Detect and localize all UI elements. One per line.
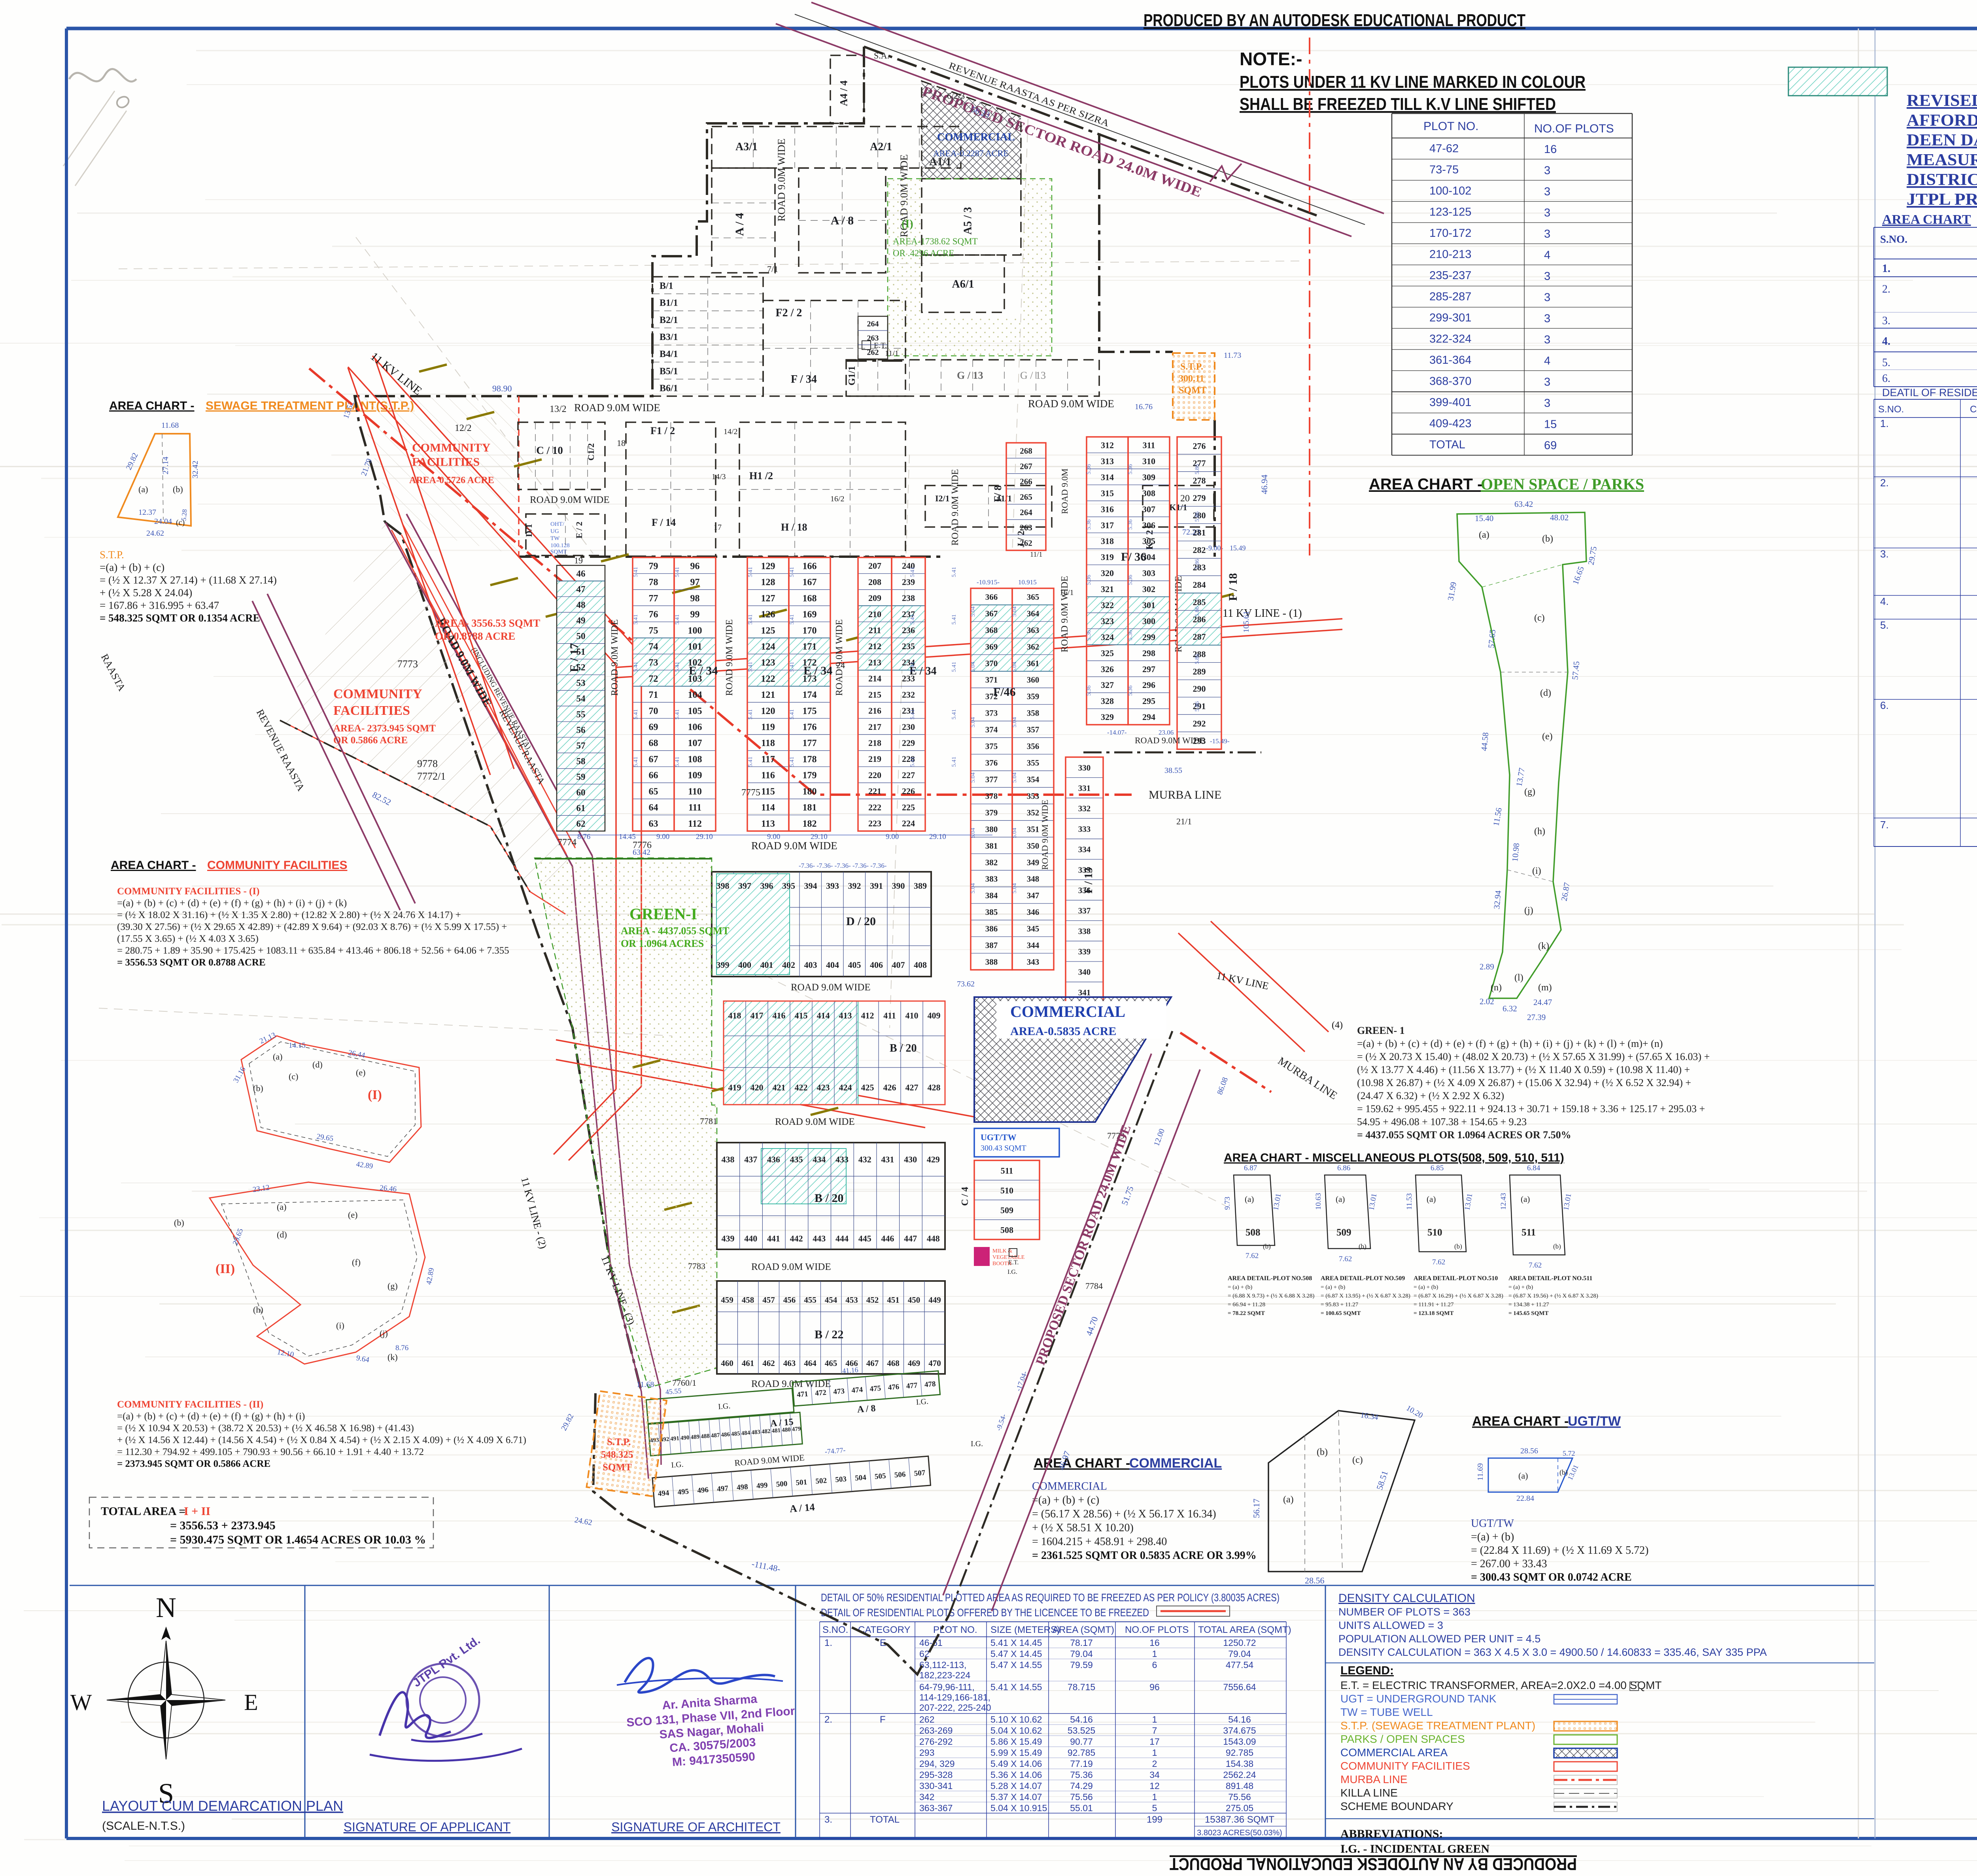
svg-text:63.42: 63.42 [633, 848, 650, 857]
svg-text:(n): (n) [1491, 982, 1502, 993]
svg-text:330-341: 330-341 [919, 1781, 953, 1791]
svg-text:443: 443 [813, 1234, 826, 1243]
svg-text:499: 499 [756, 1481, 768, 1490]
svg-text:7760/1: 7760/1 [672, 1378, 696, 1388]
svg-text:MURBA LINE: MURBA LINE [1340, 1773, 1408, 1785]
svg-text:62: 62 [919, 1649, 930, 1659]
svg-text:5.41: 5.41 [951, 662, 957, 672]
svg-text:(a): (a) [1521, 1194, 1530, 1204]
svg-text:5.: 5. [1880, 619, 1889, 631]
svg-text:5.47 X 14.45: 5.47 X 14.45 [990, 1649, 1042, 1659]
svg-text:W: W [70, 1689, 92, 1715]
svg-text:5.41: 5.41 [633, 614, 639, 625]
svg-text:ROAD 9.0M WIDE: ROAD 9.0M WIDE [530, 495, 610, 505]
svg-text:24: 24 [836, 660, 845, 670]
svg-text:265: 265 [1020, 492, 1032, 502]
svg-text:386: 386 [985, 924, 998, 933]
svg-text:9.00: 9.00 [656, 833, 669, 841]
svg-text:98.90: 98.90 [492, 384, 512, 393]
svg-text:= (6.88 X 9.73) + (½ X 6.88 X: = (6.88 X 9.73) + (½ X 6.88 X 3.28) [1228, 1293, 1314, 1299]
svg-text:20: 20 [1180, 493, 1190, 504]
svg-text:510: 510 [1000, 1185, 1013, 1195]
svg-text:180: 180 [803, 786, 817, 797]
svg-text:5.04: 5.04 [1011, 772, 1018, 783]
svg-text:AREA- 3556.53 SQMT: AREA- 3556.53 SQMT [435, 617, 540, 629]
svg-text:B / 20: B / 20 [890, 1042, 917, 1054]
svg-text:3.: 3. [824, 1814, 832, 1825]
svg-text:215: 215 [868, 690, 881, 699]
svg-text:UGT/TW: UGT/TW [1568, 1414, 1621, 1429]
svg-text:378: 378 [985, 791, 998, 801]
svg-text:AREA (SQMT): AREA (SQMT) [1053, 1625, 1114, 1635]
svg-text:308: 308 [1142, 488, 1155, 498]
svg-text:219: 219 [868, 754, 881, 764]
svg-text:7.: 7. [1880, 819, 1889, 831]
svg-text:214: 214 [868, 674, 881, 684]
svg-text:53: 53 [576, 678, 586, 688]
svg-text:5.04: 5.04 [970, 606, 976, 617]
svg-text:356: 356 [1027, 742, 1040, 751]
svg-text:(I): (I) [368, 1088, 382, 1102]
svg-text:182: 182 [803, 819, 817, 829]
svg-text:170: 170 [803, 625, 817, 636]
svg-text:AREA DETAIL-PLOT NO.509: AREA DETAIL-PLOT NO.509 [1321, 1275, 1405, 1282]
svg-text:399: 399 [716, 960, 730, 970]
svg-text:C1/2: C1/2 [586, 443, 596, 461]
svg-text:= 100.65 SQMT: = 100.65 SQMT [1321, 1310, 1361, 1317]
svg-text:176: 176 [803, 722, 817, 733]
svg-text:(h): (h) [1534, 826, 1545, 837]
svg-text:216: 216 [868, 706, 881, 716]
svg-text:E / 34: E / 34 [803, 664, 832, 677]
svg-text:5.41: 5.41 [633, 662, 639, 672]
svg-text:118: 118 [761, 738, 775, 748]
svg-text:B5/1: B5/1 [660, 366, 678, 376]
svg-text:+ (½ X 58.51 X 10.20): + (½ X 58.51 X 10.20) [1032, 1522, 1134, 1534]
svg-text:3: 3 [1544, 397, 1550, 410]
svg-text:333: 333 [1078, 824, 1091, 834]
svg-text:ROAD 9.0M WIDE: ROAD 9.0M WIDE [791, 982, 871, 993]
svg-text:3: 3 [1544, 185, 1550, 198]
svg-text:REVISED LAYOUT CUM DEMARCATION: REVISED LAYOUT CUM DEMARCATION PLAN OF [1907, 92, 1977, 110]
svg-text:5.49 X 14.06: 5.49 X 14.06 [990, 1759, 1042, 1769]
svg-text:327: 327 [1101, 680, 1114, 690]
svg-text:278: 278 [1193, 476, 1206, 486]
svg-text:COMMERCIAL AREA: COMMERCIAL AREA [1340, 1746, 1448, 1759]
svg-text:117: 117 [761, 754, 775, 765]
svg-text:397: 397 [738, 881, 751, 891]
svg-text:368-370: 368-370 [1429, 375, 1471, 388]
svg-text:14.45: 14.45 [619, 833, 636, 841]
svg-text:90.77: 90.77 [1070, 1736, 1093, 1747]
svg-text:9778: 9778 [417, 758, 438, 769]
svg-text:96: 96 [1149, 1682, 1160, 1692]
svg-text:373: 373 [985, 708, 998, 718]
svg-text:5.41 X 14.55: 5.41 X 14.55 [990, 1682, 1042, 1692]
svg-text:338: 338 [1078, 926, 1091, 936]
svg-text:262: 262 [867, 348, 879, 357]
svg-text:123-125: 123-125 [1429, 206, 1471, 219]
svg-text:46: 46 [576, 569, 586, 579]
svg-text:178: 178 [803, 754, 817, 765]
svg-text:437: 437 [744, 1154, 757, 1164]
svg-text:310: 310 [1142, 456, 1155, 466]
svg-text:5.04: 5.04 [1011, 827, 1018, 838]
svg-text:3: 3 [1544, 291, 1550, 304]
svg-text:TOTAL AREA (SQMT): TOTAL AREA (SQMT) [1198, 1625, 1291, 1635]
svg-text:32.94: 32.94 [1492, 890, 1503, 910]
svg-text:TOTAL AREA =: TOTAL AREA = [101, 1505, 185, 1518]
svg-text:57.45: 57.45 [1570, 661, 1581, 680]
svg-text:8.76: 8.76 [395, 1344, 408, 1352]
svg-text:64: 64 [649, 803, 658, 813]
svg-text:417: 417 [750, 1011, 764, 1020]
svg-text:NOTE:-: NOTE:- [1240, 49, 1302, 69]
svg-text:5.04 X 10.915: 5.04 X 10.915 [990, 1803, 1047, 1813]
svg-text:S.NO.: S.NO. [822, 1625, 848, 1635]
svg-text:=(a) + (b) + (c) + (d) + (e) +: =(a) + (b) + (c) + (d) + (e) + (f) + (g)… [1357, 1038, 1663, 1049]
svg-text:S.T.P.: S.T.P. [1180, 362, 1203, 372]
svg-text:(b): (b) [1263, 1243, 1271, 1250]
svg-text:402: 402 [782, 960, 795, 970]
svg-text:16.76: 16.76 [1135, 402, 1153, 411]
svg-text:382: 382 [985, 858, 998, 867]
svg-text:453: 453 [845, 1295, 858, 1305]
svg-text:B/1: B/1 [660, 281, 673, 291]
svg-text:389: 389 [914, 881, 927, 891]
svg-text:7.62: 7.62 [1529, 1261, 1542, 1270]
svg-text:(b): (b) [1542, 534, 1553, 544]
svg-text:77: 77 [649, 593, 658, 604]
svg-text:5.36: 5.36 [1127, 519, 1134, 530]
svg-text:2562.24: 2562.24 [1223, 1770, 1256, 1780]
svg-text:34: 34 [1149, 1770, 1160, 1780]
svg-text:442: 442 [790, 1234, 803, 1243]
svg-text:SIGNATURE OF ARCHITECT: SIGNATURE OF ARCHITECT [611, 1820, 781, 1834]
svg-text:= 3556.53 + 2373.945: = 3556.53 + 2373.945 [170, 1519, 276, 1532]
svg-text:F / 18: F / 18 [1227, 573, 1240, 601]
svg-text:32.42: 32.42 [191, 461, 200, 478]
svg-text:112: 112 [688, 819, 702, 829]
svg-text:366: 366 [985, 592, 998, 602]
svg-text:5.41: 5.41 [674, 614, 680, 625]
svg-text:297: 297 [1142, 664, 1155, 674]
svg-text:AREA DETAIL-PLOT NO.511: AREA DETAIL-PLOT NO.511 [1508, 1275, 1592, 1282]
svg-text:3: 3 [1544, 228, 1550, 240]
svg-text:G / 13: G / 13 [1020, 370, 1046, 381]
svg-text:D / 20: D / 20 [846, 915, 876, 928]
svg-text:179: 179 [803, 771, 817, 781]
svg-text:5.41: 5.41 [633, 709, 639, 720]
svg-text:F / 14: F / 14 [652, 517, 676, 528]
svg-text:G / 13: G / 13 [957, 370, 983, 381]
svg-text:217: 217 [868, 722, 881, 732]
svg-text:75.36: 75.36 [1070, 1770, 1093, 1780]
svg-text:11/1: 11/1 [1030, 550, 1042, 558]
svg-text:374: 374 [985, 725, 998, 735]
svg-text:48.02: 48.02 [1550, 513, 1569, 522]
svg-text:PLOTS UNDER 11 KV LINE MARKED: PLOTS UNDER 11 KV LINE MARKED IN COLOUR [1240, 72, 1586, 92]
svg-text:78.17: 78.17 [1070, 1638, 1093, 1648]
svg-text:281: 281 [1193, 528, 1206, 538]
svg-text:28.56: 28.56 [1305, 1576, 1325, 1585]
svg-text:226: 226 [902, 786, 915, 796]
svg-text:154.38: 154.38 [1226, 1759, 1253, 1769]
svg-text:311: 311 [1143, 440, 1155, 450]
svg-text:168: 168 [803, 593, 817, 604]
svg-text:(b): (b) [1359, 1243, 1367, 1250]
svg-text:= 167.86 + 316.995 + 63.47: = 167.86 + 316.995 + 63.47 [100, 599, 219, 611]
svg-text:5.04: 5.04 [1011, 661, 1018, 672]
svg-text:A5 / 3: A5 / 3 [962, 207, 974, 235]
svg-text:DEATIL OF RESIDENTIAL PLOTS: DEATIL OF RESIDENTIAL PLOTS [1882, 387, 1977, 399]
svg-text:384: 384 [985, 891, 998, 900]
svg-text:420: 420 [750, 1083, 764, 1092]
svg-text:F / 34: F / 34 [791, 373, 817, 385]
svg-text:262: 262 [919, 1714, 934, 1725]
svg-text:5.99 X 15.49: 5.99 X 15.49 [990, 1748, 1042, 1758]
svg-text:221: 221 [868, 786, 881, 796]
svg-text:63,112-113,: 63,112-113, [919, 1660, 966, 1670]
svg-text:73: 73 [649, 658, 658, 668]
svg-text:294, 329: 294, 329 [919, 1759, 955, 1769]
svg-text:343: 343 [1027, 957, 1040, 967]
svg-text:498: 498 [736, 1483, 748, 1492]
svg-text:DENSITY CALCULATION = 363 X 4.: DENSITY CALCULATION = 363 X 4.5 X 3.0 = … [1338, 1646, 1767, 1658]
svg-text:B6/1: B6/1 [660, 383, 678, 393]
svg-text:10.63: 10.63 [1314, 1193, 1323, 1210]
svg-text:ROAD 9.0M WIDE: ROAD 9.0M WIDE [1040, 800, 1050, 870]
svg-text:15: 15 [1544, 418, 1557, 431]
svg-text:341: 341 [1078, 988, 1091, 997]
svg-text:462: 462 [762, 1358, 775, 1368]
svg-text:S.T.P. (SEWAGE TREATMENT PLANT: S.T.P. (SEWAGE TREATMENT PLANT) [1340, 1719, 1535, 1732]
svg-text:367: 367 [985, 609, 998, 618]
svg-text:S.NO.: S.NO. [1880, 233, 1907, 245]
svg-text:121: 121 [761, 690, 775, 700]
svg-text:= 159.62 + 995.455 + 922.11 +: = 159.62 + 995.455 + 922.11 + 924.13 + 3… [1357, 1103, 1705, 1115]
svg-text:= (½ X 20.73 X 15.40) + (48.02: = (½ X 20.73 X 15.40) + (48.02 X 20.73) … [1357, 1051, 1710, 1062]
svg-text:29.10: 29.10 [696, 833, 713, 841]
svg-text:369: 369 [985, 642, 998, 652]
svg-text:65: 65 [649, 786, 658, 797]
svg-text:487: 487 [711, 1432, 720, 1439]
svg-text:5.04: 5.04 [1011, 717, 1018, 727]
svg-text:(a): (a) [277, 1202, 286, 1212]
svg-text:166: 166 [803, 561, 817, 571]
svg-text:= 134.38 + 11.27: = 134.38 + 11.27 [1508, 1302, 1549, 1308]
svg-text:433: 433 [835, 1154, 849, 1164]
svg-text:422: 422 [795, 1083, 808, 1092]
svg-text:376: 376 [985, 758, 998, 768]
svg-text:457: 457 [762, 1295, 775, 1305]
svg-text:50: 50 [576, 631, 586, 641]
svg-text:354: 354 [1027, 775, 1040, 784]
svg-text:5.04: 5.04 [1011, 883, 1018, 894]
svg-text:5.04: 5.04 [970, 772, 976, 783]
svg-text:12.37: 12.37 [138, 508, 156, 517]
svg-text:TW = TUBE WELL: TW = TUBE WELL [1340, 1706, 1433, 1718]
svg-text:SQMT: SQMT [550, 549, 567, 555]
svg-text:5.41: 5.41 [747, 662, 754, 672]
svg-text:548.325: 548.325 [601, 1449, 633, 1460]
svg-text:13/2: 13/2 [550, 404, 567, 414]
svg-text:429: 429 [927, 1154, 940, 1164]
svg-text:285: 285 [1193, 597, 1206, 607]
svg-text:432: 432 [858, 1154, 871, 1164]
svg-text:344: 344 [1027, 941, 1040, 950]
svg-text:199: 199 [1147, 1814, 1162, 1825]
svg-text:7773: 7773 [397, 658, 418, 670]
svg-text:452: 452 [866, 1295, 879, 1305]
svg-text:A / 8: A / 8 [857, 1403, 876, 1415]
svg-text:6.: 6. [1882, 372, 1890, 385]
svg-text:456: 456 [783, 1295, 796, 1305]
svg-text:400: 400 [738, 960, 751, 970]
svg-text:I.G.: I.G. [916, 1397, 929, 1407]
svg-text:57: 57 [576, 741, 586, 750]
svg-text:263: 263 [1020, 523, 1032, 533]
svg-text:413: 413 [839, 1011, 852, 1020]
svg-text:307: 307 [1142, 504, 1155, 514]
svg-text:17: 17 [714, 523, 722, 532]
svg-text:5.41: 5.41 [909, 567, 916, 577]
svg-text:392: 392 [848, 881, 861, 891]
svg-text:267: 267 [1020, 461, 1032, 471]
svg-text:60: 60 [576, 788, 586, 797]
svg-text:7781: 7781 [700, 1116, 717, 1126]
svg-text:305: 305 [1142, 536, 1155, 546]
svg-text:E / 2: E / 2 [574, 521, 584, 538]
svg-text:314: 314 [1101, 472, 1114, 482]
svg-text:364: 364 [1027, 609, 1040, 618]
svg-text:239: 239 [902, 577, 915, 587]
svg-text:(10.98 X 26.87) + (½ X 4.09 X: (10.98 X 26.87) + (½ X 4.09 X 26.87) + (… [1357, 1077, 1691, 1088]
svg-text:365: 365 [1027, 592, 1040, 602]
svg-text:322: 322 [1101, 600, 1114, 610]
svg-text:92.785: 92.785 [1226, 1748, 1253, 1758]
svg-text:22.84: 22.84 [1516, 1494, 1534, 1503]
svg-text:5.36: 5.36 [1127, 574, 1134, 585]
svg-text:5.41: 5.41 [633, 757, 639, 767]
svg-text:208: 208 [868, 577, 881, 587]
svg-text:469: 469 [908, 1358, 920, 1368]
svg-text:= (22.84 X 11.69) + (½ X 11.6: = (22.84 X 11.69) + (½ X 11.69 X 5.72) [1471, 1544, 1648, 1557]
svg-text:6.85: 6.85 [1431, 1164, 1444, 1172]
svg-text:100: 100 [688, 625, 702, 636]
svg-text:TOTAL: TOTAL [870, 1814, 900, 1825]
svg-text:5.41: 5.41 [789, 567, 795, 577]
svg-text:79.59: 79.59 [1070, 1660, 1093, 1670]
svg-text:209: 209 [868, 593, 881, 603]
svg-text:11 KV LINE - (1): 11 KV LINE - (1) [1223, 607, 1302, 620]
svg-text:1: 1 [1152, 1649, 1157, 1659]
svg-text:266: 266 [1020, 477, 1032, 486]
svg-text:113: 113 [761, 819, 775, 829]
svg-text:ROAD 9.0M WIDE: ROAD 9.0M WIDE [775, 1117, 855, 1127]
svg-text:5.72: 5.72 [1563, 1449, 1575, 1457]
svg-text:360: 360 [1027, 675, 1040, 685]
svg-text:47-62: 47-62 [1429, 142, 1459, 155]
svg-text:411: 411 [883, 1011, 896, 1020]
svg-text:FACILITIES: FACILITIES [333, 703, 410, 718]
svg-text:96: 96 [690, 561, 700, 571]
svg-text:300: 300 [1142, 616, 1155, 626]
svg-text:290: 290 [1193, 684, 1206, 694]
svg-text:430: 430 [904, 1154, 917, 1164]
svg-text:482: 482 [761, 1428, 771, 1435]
svg-text:12/2: 12/2 [455, 423, 472, 433]
svg-text:325: 325 [1101, 648, 1114, 658]
svg-text:= (½ X 18.02 X 31.16) + (½ X 1: = (½ X 18.02 X 31.16) + (½ X 1.35 X 2.80… [117, 910, 461, 920]
svg-text:348: 348 [1027, 874, 1040, 884]
svg-text:334: 334 [1078, 845, 1091, 854]
svg-text:210: 210 [868, 609, 881, 619]
svg-text:128: 128 [761, 577, 775, 588]
svg-text:345: 345 [1027, 924, 1040, 933]
svg-text:511: 511 [1521, 1227, 1536, 1238]
svg-text:26.46: 26.46 [380, 1184, 397, 1194]
svg-text:(g): (g) [1524, 787, 1535, 797]
svg-text:18: 18 [617, 438, 626, 448]
svg-text:OR .4296 ACRE: OR .4296 ACRE [893, 248, 954, 258]
svg-text:FACILITIES: FACILITIES [412, 455, 480, 469]
svg-text:COMMERCIAL: COMMERCIAL [1129, 1456, 1222, 1471]
svg-text:435: 435 [790, 1154, 803, 1164]
svg-text:38.55: 38.55 [1164, 766, 1182, 775]
svg-text:361-364: 361-364 [1429, 354, 1471, 367]
svg-text:3: 3 [1544, 270, 1550, 283]
svg-text:210-213: 210-213 [1429, 248, 1471, 261]
svg-text:C / 4: C / 4 [960, 1187, 970, 1206]
svg-text:= (a) + (b): = (a) + (b) [1414, 1284, 1438, 1290]
svg-text:(a): (a) [1518, 1471, 1528, 1481]
svg-text:AREA CHART - MISCELLANEOUS PLO: AREA CHART - MISCELLANEOUS PLOTS(508, 50… [1224, 1151, 1564, 1164]
svg-text:475: 475 [869, 1384, 881, 1393]
svg-text:(a): (a) [273, 1052, 282, 1062]
svg-text:5.41: 5.41 [747, 709, 754, 720]
svg-text:296: 296 [1142, 680, 1155, 690]
svg-text:10.98: 10.98 [1510, 843, 1521, 862]
svg-text:54.16: 54.16 [1070, 1714, 1093, 1725]
svg-text:(f): (f) [352, 1257, 361, 1267]
svg-text:57.65: 57.65 [1486, 629, 1497, 648]
svg-text:5.04: 5.04 [970, 827, 976, 838]
svg-text:C / 10: C / 10 [536, 444, 563, 456]
svg-text:ABBREVIATIONS:: ABBREVIATIONS: [1340, 1827, 1443, 1840]
svg-text:211: 211 [869, 625, 881, 635]
svg-text:-10.915-: -10.915- [977, 578, 1000, 586]
svg-text:(a): (a) [138, 484, 148, 494]
svg-text:5.41 X 14.45: 5.41 X 14.45 [990, 1638, 1042, 1648]
svg-text:6: 6 [1152, 1660, 1157, 1670]
svg-text:G1/1: G1/1 [847, 366, 857, 385]
svg-text:23.06: 23.06 [1159, 729, 1174, 736]
svg-text:218: 218 [868, 738, 881, 748]
svg-text:285-287: 285-287 [1429, 291, 1471, 303]
svg-text:323: 323 [1101, 616, 1114, 626]
svg-text:ROAD 9.0M WIDE: ROAD 9.0M WIDE [1028, 398, 1114, 410]
svg-text:405: 405 [848, 960, 861, 970]
svg-text:= 78.22 SQMT: = 78.22 SQMT [1228, 1310, 1265, 1317]
svg-text:A / 15: A / 15 [770, 1417, 794, 1429]
svg-text:(j): (j) [1524, 905, 1533, 916]
svg-text:324: 324 [1101, 632, 1114, 642]
svg-text:114-129,166-181,: 114-129,166-181, [919, 1692, 990, 1702]
svg-text:105.61: 105.61 [1242, 611, 1251, 633]
svg-text:339: 339 [1078, 947, 1091, 956]
svg-text:77.19: 77.19 [1070, 1759, 1093, 1769]
